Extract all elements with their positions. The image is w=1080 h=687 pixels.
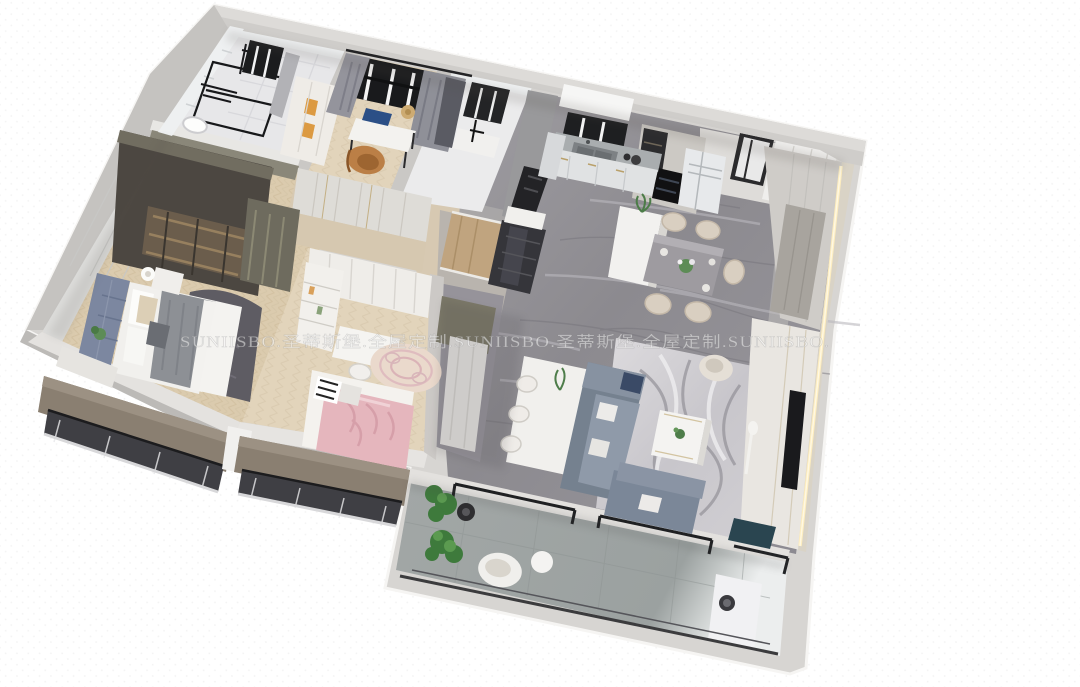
svg-text:SUNIISBO.圣蒂斯堡.全屋定制.SUNIISBO.圣蒂: SUNIISBO.圣蒂斯堡.全屋定制.SUNIISBO.圣蒂斯堡.全屋定制.SU…	[180, 333, 830, 351]
